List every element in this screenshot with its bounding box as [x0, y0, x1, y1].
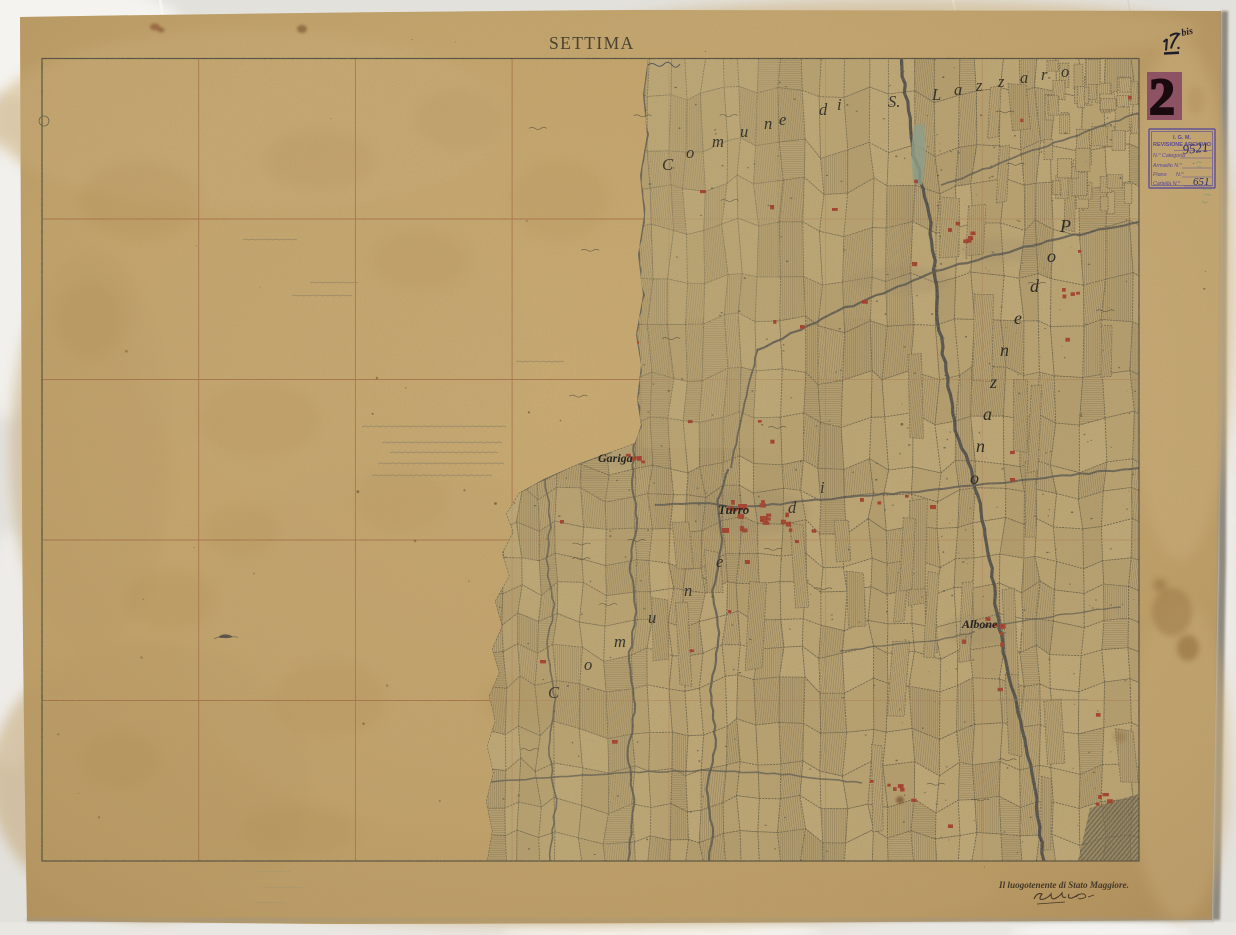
svg-text:m: m	[712, 132, 724, 151]
svg-text:d: d	[1030, 276, 1040, 296]
svg-text:651: 651	[1193, 176, 1210, 188]
svg-text:P: P	[1059, 216, 1071, 236]
svg-text:e: e	[779, 110, 786, 129]
svg-text:Piano: Piano	[1153, 172, 1167, 178]
svg-text:z: z	[997, 72, 1005, 91]
svg-text:Il luogotenente di Stato Maggi: Il luogotenente di Stato Maggiore.	[998, 880, 1129, 890]
svg-text:u: u	[648, 608, 656, 627]
svg-text:e: e	[716, 552, 723, 571]
svg-text:z: z	[989, 372, 997, 392]
svg-text:I. G. M.: I. G. M.	[1173, 135, 1192, 141]
svg-text:Turro: Turro	[718, 502, 750, 517]
svg-text:n: n	[1000, 340, 1009, 360]
svg-text:a: a	[1020, 68, 1028, 87]
svg-text:S.: S.	[888, 92, 900, 111]
svg-text:a: a	[983, 404, 992, 424]
svg-text:z: z	[975, 76, 983, 95]
svg-text:e: e	[1014, 308, 1022, 328]
svg-text:n: n	[976, 436, 985, 456]
svg-text:L: L	[931, 85, 941, 104]
svg-text:C: C	[662, 155, 674, 174]
svg-text:Gariga: Gariga	[598, 451, 633, 465]
svg-text:o: o	[970, 468, 979, 488]
svg-text:Albone: Albone	[961, 617, 998, 631]
svg-text:i: i	[820, 478, 825, 497]
svg-text:2: 2	[1149, 69, 1175, 126]
svg-text:o: o	[584, 655, 592, 674]
svg-text:d: d	[788, 498, 797, 517]
svg-text:r: r	[1041, 65, 1048, 84]
svg-text:a: a	[954, 80, 962, 99]
svg-text:d: d	[819, 100, 828, 119]
svg-text:m: m	[614, 632, 626, 651]
svg-text:n: n	[764, 114, 772, 133]
svg-text:n: n	[684, 581, 692, 600]
svg-text:o: o	[1047, 246, 1056, 266]
svg-text:o: o	[686, 143, 694, 162]
svg-text:SETTIMA: SETTIMA	[549, 33, 635, 53]
svg-text:o: o	[1061, 62, 1069, 81]
svg-text:9521: 9521	[1182, 139, 1209, 157]
svg-text:u: u	[740, 122, 748, 141]
svg-text:i: i	[837, 95, 842, 114]
